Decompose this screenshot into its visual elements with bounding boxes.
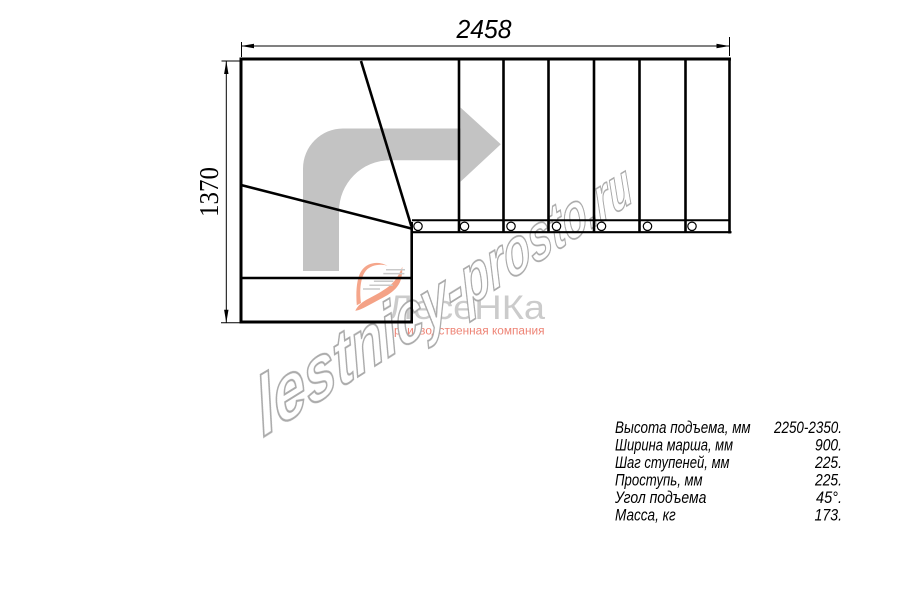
svg-text:Шаг ступеней, мм: Шаг ступеней, мм — [615, 453, 730, 472]
svg-text:Ширина марша, мм: Ширина марша, мм — [615, 436, 733, 455]
svg-text:225.: 225. — [814, 453, 842, 472]
svg-text:173.: 173. — [815, 506, 843, 525]
svg-text:225.: 225. — [814, 471, 842, 490]
svg-text:2250-2350.: 2250-2350. — [773, 418, 842, 437]
svg-text:Проступь, мм: Проступь, мм — [615, 471, 703, 490]
svg-text:900.: 900. — [815, 436, 842, 455]
svg-text:45°.: 45°. — [816, 488, 842, 507]
svg-text:2458: 2458 — [456, 14, 512, 44]
svg-text:Масса, кг: Масса, кг — [615, 506, 676, 525]
svg-text:Высота подъема, мм: Высота подъема, мм — [615, 418, 751, 437]
svg-text:1370: 1370 — [194, 167, 224, 217]
svg-text:Угол подъема: Угол подъема — [614, 488, 706, 507]
